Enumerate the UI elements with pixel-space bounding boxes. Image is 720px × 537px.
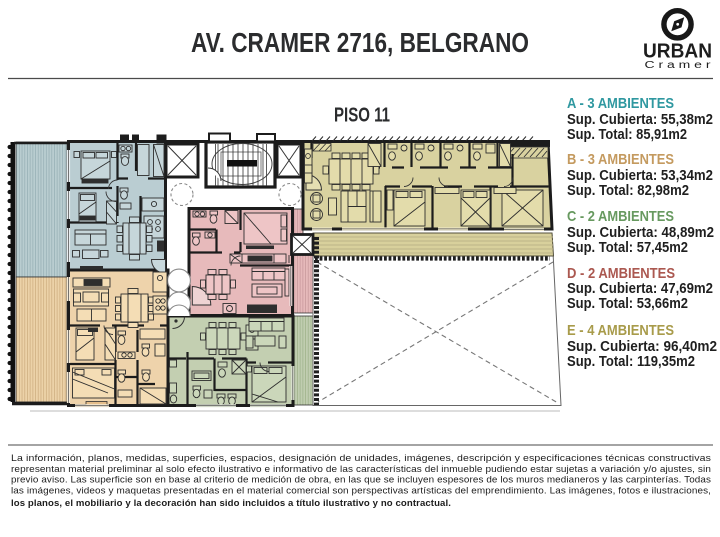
svg-text:Sup. Total: 57,45m2: Sup. Total: 57,45m2 [567,240,688,256]
svg-text:Sup. Cubierta: 47,69m2: Sup. Cubierta: 47,69m2 [567,281,713,297]
svg-text:AV. CRAMER 2716, BELGRANO: AV. CRAMER 2716, BELGRANO [191,27,529,58]
svg-text:Sup. Cubierta: 48,89m2: Sup. Cubierta: 48,89m2 [567,225,714,241]
svg-text:Sup. Cubierta: 53,34m2: Sup. Cubierta: 53,34m2 [567,168,713,184]
svg-text:A - 3 AMBIENTES: A - 3 AMBIENTES [567,95,674,112]
svg-text:C r a m e r: C r a m e r [645,60,712,71]
svg-text:D - 2 AMBIENTES: D - 2 AMBIENTES [567,265,675,282]
svg-text:Sup. Cubierta: 55,38m2: Sup. Cubierta: 55,38m2 [567,112,713,128]
svg-text:E - 4 AMBIENTES: E - 4 AMBIENTES [567,322,674,339]
svg-text:PISO 11: PISO 11 [334,104,390,126]
svg-text:Sup. Cubierta: 96,40m2: Sup. Cubierta: 96,40m2 [567,339,717,355]
svg-text:previo aviso. Las superficie s: previo aviso. Las superficie son en base… [11,475,711,485]
svg-text:C - 2 AMBIENTES: C - 2 AMBIENTES [567,208,674,225]
svg-text:La información, planos, medida: La información, planos, medidas, superfi… [11,453,711,463]
svg-text:representan material prelimina: representan material preliminar al solo … [11,464,711,474]
svg-text:Sup. Total: 85,91m2: Sup. Total: 85,91m2 [567,127,687,143]
svg-text:Sup. Total: 82,98m2: Sup. Total: 82,98m2 [567,183,689,199]
svg-text:Sup. Total: 119,35m2: Sup. Total: 119,35m2 [567,354,695,370]
svg-text:los planos, el mobiliario y la: los planos, el mobiliario y la decoració… [11,498,451,508]
svg-text:Sup. Total: 53,66m2: Sup. Total: 53,66m2 [567,296,688,312]
svg-text:las imágenes, videos y maqueta: las imágenes, videos y maquetas presenta… [11,485,711,495]
svg-text:B - 3 AMBIENTES: B - 3 AMBIENTES [567,151,674,168]
